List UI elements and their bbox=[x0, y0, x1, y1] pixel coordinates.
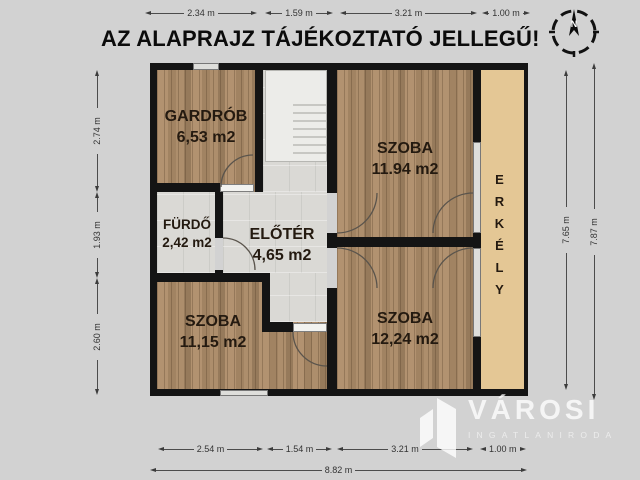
watermark-brand: VÁROSI bbox=[468, 396, 617, 424]
room-area: 11.94 m2 bbox=[355, 159, 455, 180]
wall-room-divider-right bbox=[337, 237, 473, 247]
room-area: 12,24 m2 bbox=[355, 329, 455, 350]
dim-line bbox=[156, 470, 322, 471]
dim-label: 8.82 m bbox=[322, 465, 356, 475]
dim-left-3: 2.60 m bbox=[92, 278, 102, 395]
dim-bottom-2: 1.54 m bbox=[267, 444, 332, 454]
wall-balcony-right bbox=[524, 70, 528, 389]
wall-stair-right-upper bbox=[327, 70, 337, 193]
dim-line bbox=[97, 198, 98, 212]
window-bottom bbox=[220, 390, 268, 396]
room-name: FÜRDŐ bbox=[157, 216, 217, 234]
room-label-szoba-top-right: SZOBA 11.94 m2 bbox=[355, 138, 455, 180]
watermark-text: VÁROSI INGATLANIRODA bbox=[468, 396, 617, 440]
page-title: AZ ALAPRAJZ TÁJÉKOZTATÓ JELLEGŰ! bbox=[101, 26, 551, 52]
room-name: SZOBA bbox=[355, 138, 455, 159]
dim-label: 3.21 m bbox=[388, 444, 422, 454]
room-label-eloter: ELŐTÉR 4,65 m2 bbox=[232, 224, 332, 266]
dim-arrow bbox=[326, 447, 332, 451]
dim-label: 2.54 m bbox=[194, 444, 228, 454]
dim-bottom-1: 2.54 m bbox=[158, 444, 263, 454]
dim-label: 1.93 m bbox=[92, 221, 102, 249]
wall-mid-horizontal bbox=[150, 273, 262, 282]
wall-eloter-notch-bottom bbox=[262, 322, 293, 332]
dim-label-wrap: 1.93 m bbox=[92, 212, 102, 258]
dim-line bbox=[97, 258, 98, 272]
dim-arrow bbox=[95, 389, 99, 395]
wall-stair-right-lower bbox=[327, 288, 337, 389]
room-area: 2,42 m2 bbox=[157, 234, 217, 252]
dim-line bbox=[316, 449, 326, 450]
room-name: SZOBA bbox=[163, 311, 263, 332]
dim-line bbox=[97, 360, 98, 390]
room-area: 11,15 m2 bbox=[163, 332, 263, 353]
room-area: 6,53 m2 bbox=[156, 127, 256, 148]
dim-label: 2.34 m bbox=[184, 8, 218, 18]
room-label-furdo: FÜRDŐ 2,42 m2 bbox=[157, 216, 217, 252]
dim-line bbox=[97, 76, 98, 108]
dim-left-2: 1.93 m bbox=[92, 192, 102, 278]
dim-line bbox=[316, 13, 327, 14]
dim-arrow bbox=[257, 447, 263, 451]
watermark-building-icon bbox=[418, 396, 458, 460]
room-label-erkely: ERKÉLY bbox=[492, 172, 516, 304]
room-name: GARDRÓB bbox=[156, 106, 256, 127]
dim-label-wrap: 7.87 m bbox=[589, 209, 599, 255]
dim-line bbox=[566, 76, 567, 207]
dim-arrow bbox=[471, 11, 477, 15]
dim-label: 7.87 m bbox=[589, 218, 599, 246]
door-sill-szoba-bottom-left bbox=[293, 323, 327, 332]
wall-eloter-notch-left bbox=[262, 273, 270, 322]
compass-north-label: N bbox=[571, 19, 578, 29]
room-name: SZOBA bbox=[355, 308, 455, 329]
window-top bbox=[193, 63, 219, 70]
room-area: 4,65 m2 bbox=[232, 245, 332, 266]
dim-label: 3.21 m bbox=[392, 8, 426, 18]
dim-top-2: 1.59 m bbox=[265, 8, 333, 18]
dim-line bbox=[97, 284, 98, 314]
room-label-szoba-bottom-left: SZOBA 11,15 m2 bbox=[163, 311, 263, 353]
room-label-szoba-bottom-right: SZOBA 12,24 m2 bbox=[355, 308, 455, 350]
dim-label: 1.59 m bbox=[282, 8, 316, 18]
dim-line bbox=[594, 69, 595, 209]
dim-line bbox=[151, 13, 184, 14]
dim-top-1: 2.34 m bbox=[145, 8, 257, 18]
dim-line bbox=[425, 13, 471, 14]
door-sill-gardrob bbox=[220, 184, 254, 192]
dim-arrow bbox=[327, 11, 333, 15]
window-balcony-door-top bbox=[473, 142, 481, 233]
dim-arrow bbox=[251, 11, 257, 15]
dim-label: 7.65 m bbox=[561, 216, 571, 244]
room-name: ELŐTÉR bbox=[232, 224, 332, 245]
dim-line bbox=[346, 13, 392, 14]
watermark: VÁROSI INGATLANIRODA bbox=[418, 396, 617, 460]
dim-line bbox=[355, 470, 521, 471]
dim-right-inner: 7.65 m bbox=[561, 70, 571, 390]
dim-line bbox=[227, 449, 257, 450]
room-label-gardrob: GARDRÓB 6,53 m2 bbox=[156, 106, 256, 148]
dim-bottom-total: 8.82 m bbox=[150, 465, 527, 475]
dim-label-wrap: 2.60 m bbox=[92, 314, 102, 360]
stair-treads bbox=[293, 98, 326, 160]
wall-gardrob-bottom bbox=[150, 183, 220, 192]
dim-label: 1.00 m bbox=[489, 8, 523, 18]
wall-gardrob-stair bbox=[255, 70, 263, 192]
dim-arrow bbox=[564, 384, 568, 390]
dim-top-4: 1.00 m bbox=[482, 8, 530, 18]
dim-label-wrap: 2.74 m bbox=[92, 108, 102, 154]
window-balcony-door-bottom bbox=[473, 248, 481, 337]
dim-line bbox=[594, 255, 595, 395]
dim-top-3: 3.21 m bbox=[340, 8, 477, 18]
compass-icon: N bbox=[548, 6, 600, 58]
dim-right-outer: 7.87 m bbox=[589, 63, 599, 400]
dim-line bbox=[164, 449, 194, 450]
dim-label: 2.74 m bbox=[92, 117, 102, 145]
dim-line bbox=[566, 253, 567, 384]
dim-arrow bbox=[524, 11, 530, 15]
dim-label-wrap: 7.65 m bbox=[561, 207, 571, 253]
dim-line bbox=[273, 449, 283, 450]
watermark-subtitle: INGATLANIRODA bbox=[468, 430, 617, 440]
dim-line bbox=[271, 13, 282, 14]
dim-line bbox=[97, 154, 98, 186]
dim-line bbox=[218, 13, 251, 14]
dim-label: 1.54 m bbox=[283, 444, 317, 454]
dim-left-1: 2.74 m bbox=[92, 70, 102, 192]
dim-arrow bbox=[521, 468, 527, 472]
dim-label: 2.60 m bbox=[92, 323, 102, 351]
dim-line bbox=[343, 449, 388, 450]
